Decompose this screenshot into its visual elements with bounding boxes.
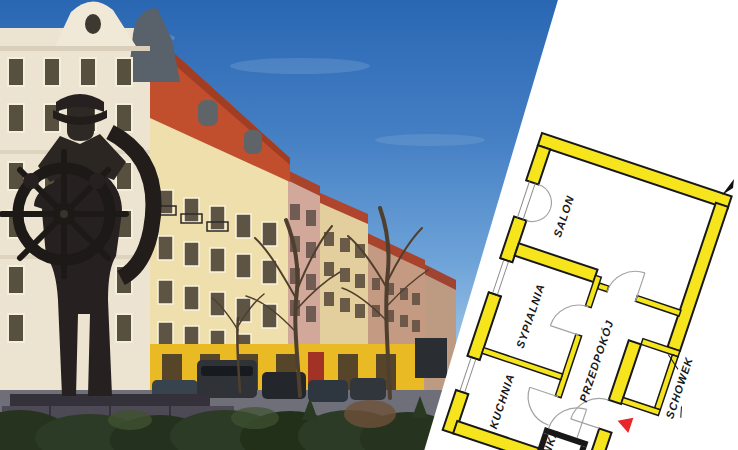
statue-hand-left bbox=[23, 173, 39, 189]
ship-wheel bbox=[2, 152, 126, 276]
label-sypialnia: SYPIALNIA bbox=[514, 282, 547, 350]
real-estate-composite: SALON SYPIALNIA KUCHNIA PRZEDPOKÓJ SCHOW… bbox=[0, 0, 738, 450]
entrance-marker bbox=[615, 413, 633, 433]
slate-tower-roof bbox=[128, 8, 180, 82]
label-kuchnia: KUCHNIA bbox=[487, 372, 517, 431]
label-salon: SALON bbox=[551, 194, 576, 239]
dark-canopy bbox=[415, 338, 447, 378]
statue-hand-right bbox=[89, 173, 105, 189]
label-przedpokoj: PRZEDPOKÓJ bbox=[577, 318, 616, 403]
cursor-arrow-icon bbox=[722, 179, 736, 196]
